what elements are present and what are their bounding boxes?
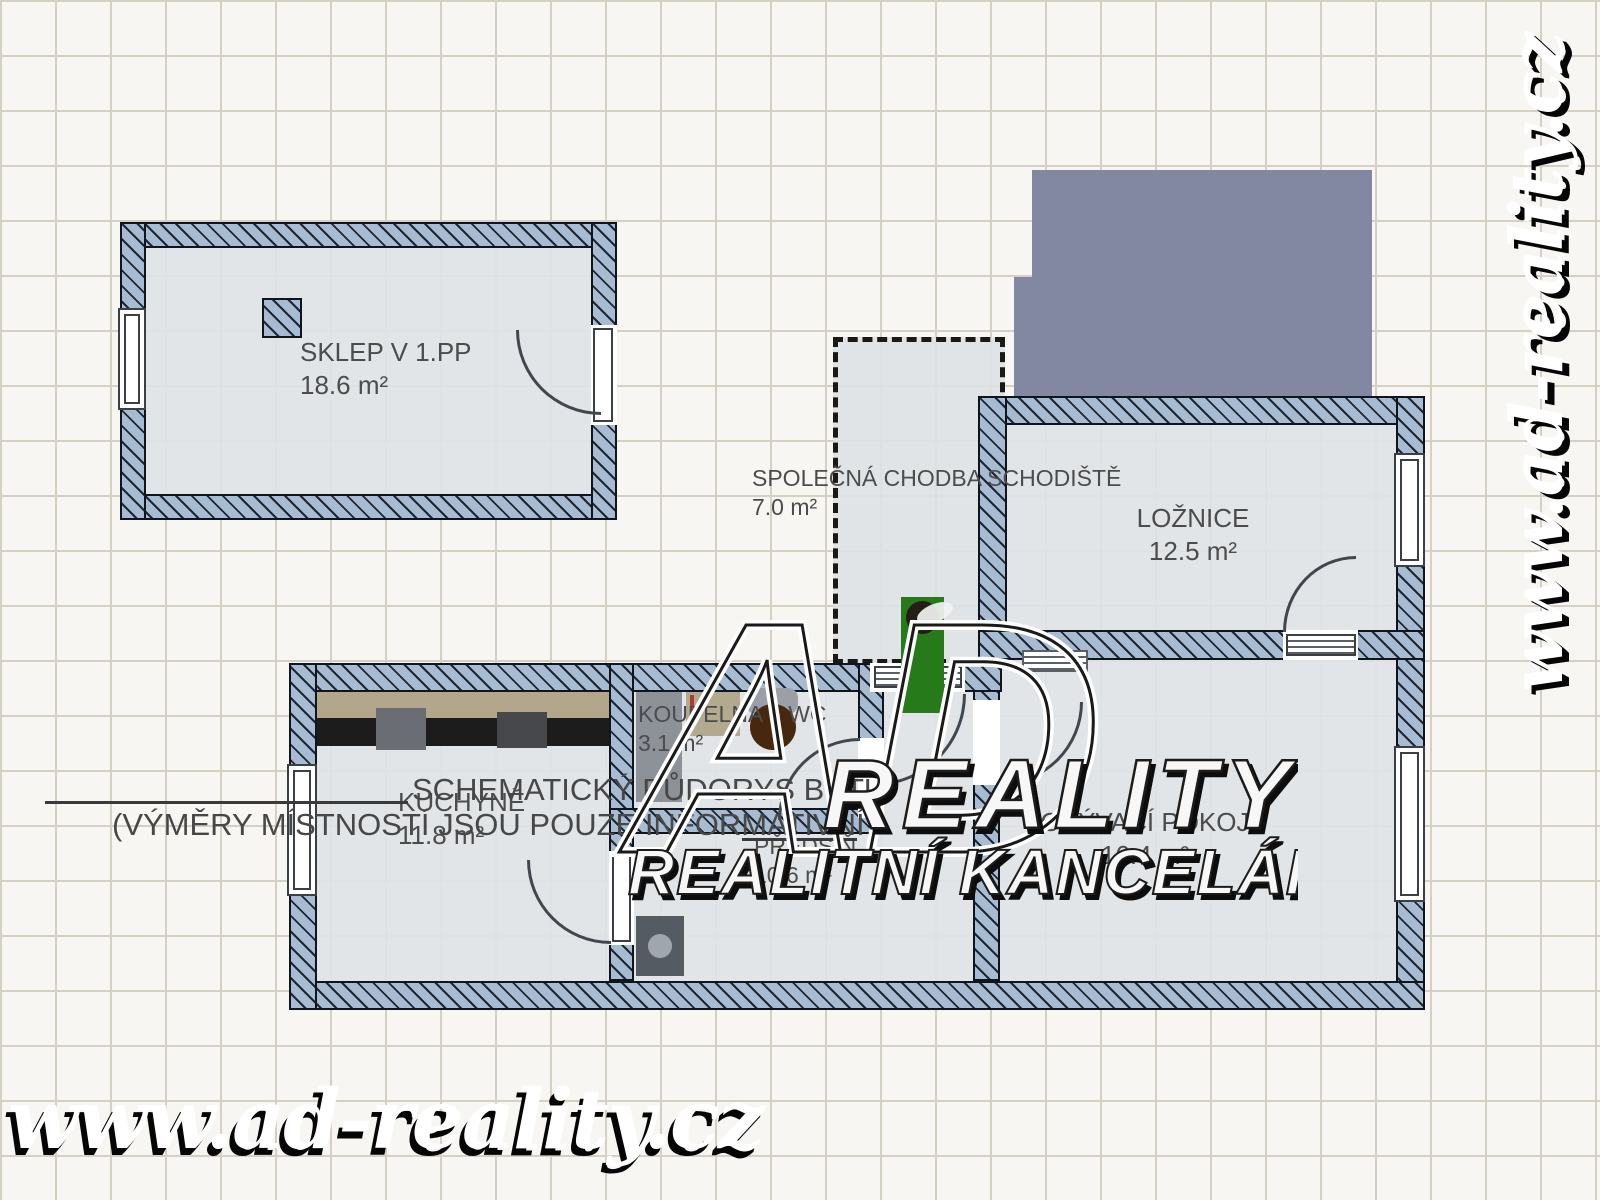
logo-kancelar-text: REALITNÍ KANCELÁŘ xyxy=(628,835,1298,908)
floor-plan-canvas: SKLEP V 1.PP 18.6 m² SPOLEČNÁ CHODBA SCH… xyxy=(0,0,1600,1200)
kitchen-counter xyxy=(317,692,609,718)
cellar-pillar xyxy=(262,298,302,338)
cellar-window xyxy=(118,308,146,410)
watermark-url-right: www.ad-reality.cz xyxy=(1494,0,1579,692)
cellar-wall-top xyxy=(120,222,617,248)
bedroom-window xyxy=(1394,453,1425,567)
room-area: 18.6 m² xyxy=(300,369,472,402)
kitchen-counter-appliances xyxy=(317,718,609,746)
washing-machine-door xyxy=(648,934,672,958)
room-name: LOŽNICE xyxy=(1118,502,1268,535)
watermark-url-bottom: www.ad-reality.cz xyxy=(8,1072,763,1168)
window-frame xyxy=(1400,459,1419,561)
living-room-window xyxy=(1394,746,1425,902)
corridor-label: SPOLEČNÁ CHODBA SCHODIŠTĚ 7.0 m² xyxy=(752,464,1121,523)
stove-icon xyxy=(376,708,426,750)
room-area: 7.0 m² xyxy=(752,493,1121,522)
window-frame xyxy=(124,314,140,404)
cellar-label: SKLEP V 1.PP 18.6 m² xyxy=(300,336,472,403)
window-frame xyxy=(1400,752,1419,896)
disclaimer-underline-left xyxy=(45,801,408,804)
bedroom-wall-top xyxy=(997,396,1423,425)
room-name: SPOLEČNÁ CHODBA SCHODIŠTĚ xyxy=(752,464,1121,493)
logo-reality-text: REALITY xyxy=(823,739,1298,849)
sink-icon xyxy=(497,712,547,748)
apartment-wall-bottom xyxy=(289,981,1425,1010)
agency-logo-watermark: AD AD REALITY REALITNÍ KANCELÁŘ xyxy=(598,556,1298,916)
room-name: SKLEP V 1.PP xyxy=(300,336,472,369)
adjacent-building-block xyxy=(1014,170,1372,398)
cellar-wall-bottom xyxy=(120,494,617,520)
